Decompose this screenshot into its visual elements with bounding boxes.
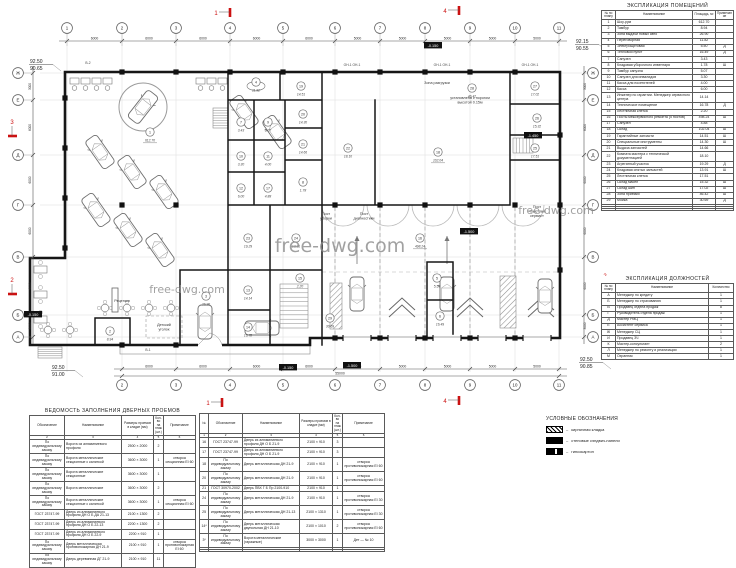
table-cell: Дверь металлическая ДН 21-9 <box>242 458 299 472</box>
table-cell: створка противопожарная EI 60 <box>343 520 385 534</box>
car-body <box>81 192 112 228</box>
column <box>557 132 562 137</box>
elevation-upper: 92.50 <box>580 357 593 363</box>
axis-label: Ж <box>16 71 20 76</box>
column <box>467 69 472 74</box>
car-body <box>145 232 176 268</box>
plan-label: диагностики <box>354 216 375 220</box>
car <box>348 277 366 311</box>
table-row: 24По индивидуальному заказуДверь металли… <box>200 492 385 506</box>
dim-text: 6000 <box>28 176 32 183</box>
axis-label: В <box>592 255 595 260</box>
dim-text: 3000 <box>28 322 32 329</box>
cad-sheet: { "plan": { "watermarks": ["free-dwg.com… <box>0 0 736 518</box>
column <box>377 69 382 74</box>
column <box>62 95 67 100</box>
room-number: 20 <box>301 112 305 116</box>
car <box>125 88 160 126</box>
table-row: По индивидуальному заказуДверь металличе… <box>30 539 196 553</box>
column-header: Обозначение <box>209 414 243 434</box>
level-tag-text: -0.150 <box>283 366 294 370</box>
level-tag-text: -1.500 <box>347 364 358 368</box>
table-cell: 1 <box>154 529 164 539</box>
room-number: 10 <box>239 154 243 158</box>
legend-label: гипсокартон <box>571 449 594 454</box>
chair <box>147 300 151 304</box>
watermark: free-dwg.com <box>149 283 225 296</box>
table-cell: 2100 × 910 <box>300 448 333 458</box>
dim-text: 6000 <box>199 364 207 368</box>
room-area: 26.90 <box>201 303 210 307</box>
table-cell: 3* <box>200 534 209 548</box>
table-cell: 20 <box>200 472 209 486</box>
plan-label: Рецепшн <box>114 299 129 303</box>
table-cell <box>164 482 196 496</box>
cad-table: №ОбозначениеНаименованиеРазмеры проемов … <box>199 413 385 552</box>
table-cell: По индивидуальному заказу <box>209 458 243 472</box>
room-bubble: 152.20 <box>296 274 304 289</box>
table-cell <box>164 440 196 454</box>
chair <box>163 306 167 310</box>
room-area: 30.69 <box>326 325 334 329</box>
table-cell: 1 <box>154 539 164 553</box>
table-cell: 1 <box>154 468 164 482</box>
wall-label: В-1 <box>145 348 150 352</box>
chair <box>105 86 110 91</box>
chair <box>103 300 107 304</box>
car-body <box>85 134 116 170</box>
table-row: 16ГОСТ 23747-99Дверь из алюминиевого про… <box>200 438 385 448</box>
table-cell: По индивидуальному заказу <box>30 482 65 496</box>
column-header: Примечание <box>716 11 734 20</box>
table-cell: 2 <box>154 440 164 454</box>
room-number: 25 <box>533 146 537 150</box>
room-bubble: 616.49 <box>436 312 444 327</box>
elevation-lower: 91.00 <box>52 372 65 378</box>
room-area: 14.66 <box>299 151 307 155</box>
elevation-lower: 90.55 <box>576 46 589 52</box>
room-area: 4.88 <box>265 195 272 199</box>
table-cell: Ворота из алюминиевого профиля <box>65 440 122 454</box>
car <box>536 279 554 313</box>
table-row <box>200 550 385 552</box>
table-cell: 2 <box>332 520 342 534</box>
car <box>143 231 177 269</box>
dim-text: 6000 <box>145 36 153 40</box>
chair <box>141 306 145 310</box>
column-header: Примечание <box>343 414 385 434</box>
elevation-leader <box>603 363 611 369</box>
room-area: 16.78 <box>244 334 252 338</box>
chair <box>39 325 43 329</box>
axis-label: Ж <box>591 71 595 76</box>
chair <box>220 86 225 91</box>
table-cell: По индивидуальному заказу <box>30 496 65 510</box>
dim-text: 6000 <box>583 176 587 183</box>
dim-text: 6000 <box>253 364 261 368</box>
workstation-desk <box>103 78 112 84</box>
legend-dash: – <box>566 438 568 443</box>
room-bubble: 1612.70 <box>143 128 157 143</box>
table-cell: Дверь металлическая противопожарная ДН 2… <box>65 539 122 553</box>
chair <box>52 328 56 332</box>
table-cell: Дверь из алюминиевого профиля ДН О Б 22-… <box>65 519 122 529</box>
stairs <box>280 284 308 328</box>
column <box>173 342 178 347</box>
level-tag: -1.450 <box>524 132 542 138</box>
room-area: 8.94 <box>107 338 114 342</box>
table-cell: 3 <box>332 448 342 458</box>
section-number: 4 <box>443 9 447 15</box>
axis-label: 10 <box>513 26 518 31</box>
table-row: ГОСТ 23747-99Дверь из алюминиевого профи… <box>30 519 196 529</box>
table-row: МОхранник1 <box>602 354 734 360</box>
legend: УСЛОВНЫЕ ОБОЗНАЧЕНИЯ –кирпичная кладка–с… <box>546 416 721 455</box>
chair <box>209 86 214 91</box>
dim-text: 5000 <box>399 364 407 368</box>
table-cell: Дверь из алюминиевого профиля ДН О Б 21-… <box>242 448 299 458</box>
room-number: 17 <box>266 186 270 190</box>
section-mark: 3 <box>8 120 17 137</box>
table-cell: 2 <box>154 519 164 529</box>
column <box>332 335 337 340</box>
table-cell: 2100 × 910 <box>300 458 333 472</box>
dim-text: 6000 <box>305 364 313 368</box>
room-number: 22 <box>346 146 350 150</box>
table-cell: Дверь металлическая ДН 21-9 <box>242 492 299 506</box>
cad-table: № по плануНаименованиеПлощадь, м²Примеча… <box>601 10 734 211</box>
column <box>119 202 124 207</box>
table-cell <box>343 550 385 552</box>
chair <box>198 86 203 91</box>
cad-table: № по плануНаименованиеКоличествоАМенедже… <box>601 283 734 360</box>
room-number: 19 <box>299 84 303 88</box>
section-mark: 4 <box>443 6 460 15</box>
room-bubble: 2014.30 <box>299 110 307 125</box>
room-bubble: 1314.14 <box>244 286 252 301</box>
table-cell: Ворота металлические секционные с калитк… <box>65 454 122 468</box>
legend-title: УСЛОВНЫЕ ОБОЗНАЧЕНИЯ <box>546 416 721 422</box>
room-bubble: 2930.69 <box>326 314 334 329</box>
table-cell: Дверь из алюминиевого профиля ДН О Б 21-… <box>242 438 299 448</box>
chair <box>94 86 99 91</box>
chair <box>39 275 43 279</box>
chair <box>153 306 157 310</box>
dim-text: 6000 <box>253 36 261 40</box>
stairs <box>38 347 62 358</box>
chair <box>169 300 173 304</box>
table-cell: 22 <box>602 152 616 162</box>
chevron-marking <box>389 298 415 317</box>
column <box>512 202 517 207</box>
table-cell: По индивидуальному заказу <box>209 492 243 506</box>
cafe-table <box>123 304 131 312</box>
walls <box>30 72 560 345</box>
room-bubble: 2615.32 <box>533 114 541 129</box>
chair <box>68 322 72 326</box>
section-number: 3 <box>10 120 14 126</box>
axis-label: В <box>17 255 20 260</box>
chair <box>46 334 50 338</box>
table-cell: 2500 × 2000 <box>122 440 154 454</box>
elevation-marker: 92.5090.65 <box>29 59 61 72</box>
room-bubble: 55.50 <box>433 274 441 289</box>
level-tag: -1.500 <box>460 228 478 234</box>
column-header: Размеры проемов в кладке (мм) <box>300 414 333 434</box>
stairs <box>513 138 533 153</box>
column <box>422 335 427 340</box>
furniture <box>34 78 554 339</box>
column-header: № по плану <box>602 11 616 20</box>
table-row: 13Инженер по гарантии. Менеджер сервисно… <box>602 93 734 103</box>
wall-label: ОН-1 ОН-1 <box>522 63 539 67</box>
car-body <box>117 154 148 190</box>
car <box>115 153 149 191</box>
room-number: 16 <box>418 236 422 240</box>
car <box>79 191 113 229</box>
car-body <box>538 279 552 313</box>
section-mark: 4 <box>443 396 460 405</box>
column-header: Обозначение <box>30 416 65 436</box>
dim-text: 6000 <box>28 124 32 131</box>
table-cell: По индивидуальному заказу <box>30 468 65 482</box>
table-title: ЭКСПЛИКАЦИЯ ПОМЕЩЕНИЙ <box>601 3 734 9</box>
dim-text: 6000 <box>199 36 207 40</box>
column <box>512 69 517 74</box>
column <box>280 69 285 74</box>
room-bubble: 103.30 <box>237 152 245 167</box>
dim-total-text: 55000 <box>335 372 345 376</box>
legend-item: –кирпичная кладка <box>546 426 721 434</box>
dim-text: 5000 <box>489 364 497 368</box>
column <box>332 202 337 207</box>
table-cell <box>164 468 196 482</box>
dim-text: 6000 <box>583 282 587 289</box>
table-cell <box>242 550 299 552</box>
axis-label: 11 <box>557 26 562 31</box>
cafe-table <box>44 326 52 334</box>
room-number: 15 <box>298 276 302 280</box>
column <box>377 335 382 340</box>
table-cell: 13 <box>602 93 616 103</box>
axis-label: 11 <box>557 383 562 388</box>
elevation-leader <box>53 65 61 71</box>
section-tick <box>458 396 461 405</box>
room-number: 18 <box>436 150 440 154</box>
table-cell <box>200 550 209 552</box>
chair <box>119 306 123 310</box>
table-header-row: ОбозначениеНаименованиеРазмеры проемов в… <box>30 416 196 436</box>
elevation-upper: 92.50 <box>30 59 43 65</box>
table-cell: 3 <box>332 438 342 448</box>
car <box>196 305 214 339</box>
table-cell <box>343 448 385 458</box>
elevation-upper: 92.50 <box>52 365 65 371</box>
column-header: Кол-во на этаж (шт.) <box>332 414 342 434</box>
elevation-lower: 90.85 <box>580 364 593 370</box>
dim-text: 5000 <box>399 36 407 40</box>
drywall-swatch-icon <box>546 448 563 456</box>
room-bubble: 114.00 <box>264 152 272 167</box>
table-cell: 2100 × 910 <box>300 492 333 506</box>
room-area: 17.51 <box>531 155 539 159</box>
workstation-desk <box>70 78 79 84</box>
dim-text: 6000 <box>583 124 587 131</box>
table-header-row: № по плануНаименованиеКоличество <box>602 284 734 293</box>
table-cell: створка секционная EI 60 <box>164 454 196 468</box>
table-cell: 2200 × 1300 <box>122 519 154 529</box>
dim-text: 5000 <box>533 36 541 40</box>
room-area: 15.32 <box>533 125 541 129</box>
table-cell: 1 <box>332 472 342 486</box>
chair <box>72 86 77 91</box>
room-bubble: 18102.04 <box>431 148 445 163</box>
dim-text: 6000 <box>28 282 32 289</box>
level-tag: -0.150 <box>24 311 42 317</box>
room-bubble: 126.00 <box>237 184 245 199</box>
table-cell <box>300 550 333 552</box>
section-mark: 1 <box>206 398 223 407</box>
wall-label: В-2 <box>85 61 90 65</box>
table-cell: 1 <box>154 454 164 468</box>
chair <box>62 328 66 332</box>
column <box>119 69 124 74</box>
table-cell: 3000 × 3000 <box>300 534 333 548</box>
table-cell: створка противопожарная EI 60 <box>164 539 196 553</box>
room-bubble: 174.88 <box>264 184 272 199</box>
room-area: 19.29 <box>244 245 252 249</box>
chair <box>169 312 173 316</box>
gate-swing-arc <box>412 205 454 226</box>
section-tick <box>458 6 461 15</box>
legend-dash: – <box>566 449 568 454</box>
room-bubble: 2114.66 <box>299 140 307 155</box>
table-cell: ГОСТ 23747-99 <box>30 519 65 529</box>
axis-label: Б <box>17 313 20 318</box>
table-cell: 11 <box>154 553 164 567</box>
room-area: 17.02 <box>531 93 539 97</box>
level-tag-text: -1.500 <box>464 230 475 234</box>
column <box>557 267 562 272</box>
gate-opening <box>433 335 461 341</box>
door-schedule-right: №ОбозначениеНаименованиеРазмеры проемов … <box>199 413 385 552</box>
table-cell: 18 <box>200 458 209 472</box>
brick-hatch-swatch-icon <box>546 426 563 434</box>
table-cell: М <box>602 354 616 360</box>
room-number: 28 <box>470 86 474 90</box>
room-area: 14.51 <box>297 93 305 97</box>
dim-text: 5000 <box>533 364 541 368</box>
staff-explication-table: ЭКСПЛИКАЦИЯ ДОЛЖНОСТЕЙ№ по плануНаименов… <box>601 276 734 360</box>
table-cell <box>716 209 734 211</box>
table-cell: 1 <box>332 458 342 472</box>
table-cell: 2 <box>154 482 164 496</box>
workstation-desk <box>92 78 101 84</box>
dim-text: 5000 <box>489 36 497 40</box>
room-explication-table: ЭКСПЛИКАЦИЯ ПОМЕЩЕНИЙ№ по плануНаименова… <box>601 3 734 211</box>
chair <box>39 300 43 304</box>
stairs <box>213 108 228 128</box>
room-number: 7 <box>240 120 242 124</box>
column <box>377 202 382 207</box>
outer-wall <box>30 72 560 345</box>
car <box>83 133 117 171</box>
table-row: ГОСТ 23747-99Дверь из алюминиевого профи… <box>30 529 196 539</box>
table-row: 17ГОСТ 23747-99Дверь из алюминиевого про… <box>200 448 385 458</box>
room-number: 27 <box>533 84 537 88</box>
column <box>173 69 178 74</box>
chair <box>68 334 72 338</box>
table-cell: ГОСТ 23747-99 <box>209 438 243 448</box>
room-bubble: 1416.78 <box>244 323 252 338</box>
dim-text: 6000 <box>28 227 32 234</box>
gate-opening <box>523 335 551 341</box>
table-row: 20По индивидуальному заказуДверь металли… <box>200 472 385 486</box>
table-cell: 17 <box>200 448 209 458</box>
plan-label: Зона разгрузки <box>424 81 450 85</box>
room-area: 14.30 <box>299 121 307 125</box>
table-cell: По индивидуальному заказу <box>209 534 243 548</box>
room-number: 13 <box>246 288 250 292</box>
table-cell: створка противопожарная EI 60 <box>343 472 385 486</box>
table-cell: По индивидуальному заказу <box>30 553 65 567</box>
table-row: 3*По индивидуальному заказуВорота металл… <box>200 534 385 548</box>
axis-label: Д <box>592 153 595 158</box>
room-number: 5 <box>436 276 438 280</box>
room-bubble: 81.78 <box>299 178 307 193</box>
dim-text: 5000 <box>444 36 452 40</box>
room-area: 5.50 <box>434 285 441 289</box>
room-bubble: 28.94 <box>106 327 114 342</box>
table-cell: По индивидуальному заказу <box>209 472 243 486</box>
door-schedule-left: ВЕДОМОСТЬ ЗАПОЛНЕНИЯ ДВЕРНЫХ ПРОЕМОВОбоз… <box>29 408 196 568</box>
table-row: 18По индивидуальному заказуДверь металли… <box>200 458 385 472</box>
cafe-table <box>66 326 74 334</box>
room-number: 8 <box>302 180 304 184</box>
column <box>467 335 472 340</box>
level-tag-text: -0.150 <box>428 44 439 48</box>
room-area: 498.24 <box>415 245 425 249</box>
car-body <box>127 89 159 124</box>
sandwich-panel-swatch-icon <box>546 437 563 445</box>
column-header: № по плану <box>602 284 616 293</box>
room-area: 16.49 <box>436 323 444 327</box>
table-cell <box>616 209 693 211</box>
table-cell: Ворота металлические <box>65 482 122 496</box>
table-title: ЭКСПЛИКАЦИЯ ДОЛЖНОСТЕЙ <box>601 276 734 282</box>
table-row: По индивидуальному заказуВорота металлич… <box>30 454 196 468</box>
legend-label: стеновые сэндвич-панели <box>571 438 619 443</box>
section-mark: 1 <box>214 8 231 17</box>
axis-label: 10 <box>513 383 518 388</box>
table-cell: ГОСТ 23747-99 <box>209 448 243 458</box>
column-header: Наименование <box>65 416 122 436</box>
room-area: 3.43 <box>238 129 245 133</box>
section-tick <box>221 398 224 407</box>
table-row: По индивидуальному заказуВорота металлич… <box>30 482 196 496</box>
table-header-row: № по плануНаименованиеПлощадь, м²Примеча… <box>602 11 734 20</box>
chair <box>103 312 107 316</box>
cad-table: ОбозначениеНаименованиеРазмеры проемов в… <box>29 415 196 568</box>
table-cell <box>693 209 716 211</box>
car <box>111 211 145 249</box>
table-cell: По индивидуальному заказу <box>30 440 65 454</box>
column <box>332 69 337 74</box>
wall-label: ОН-1 ОН-1 <box>344 63 361 67</box>
elevation-leader <box>75 371 83 377</box>
table-cell: створка противопожарная EI 30 <box>343 492 385 506</box>
chair <box>39 286 43 290</box>
